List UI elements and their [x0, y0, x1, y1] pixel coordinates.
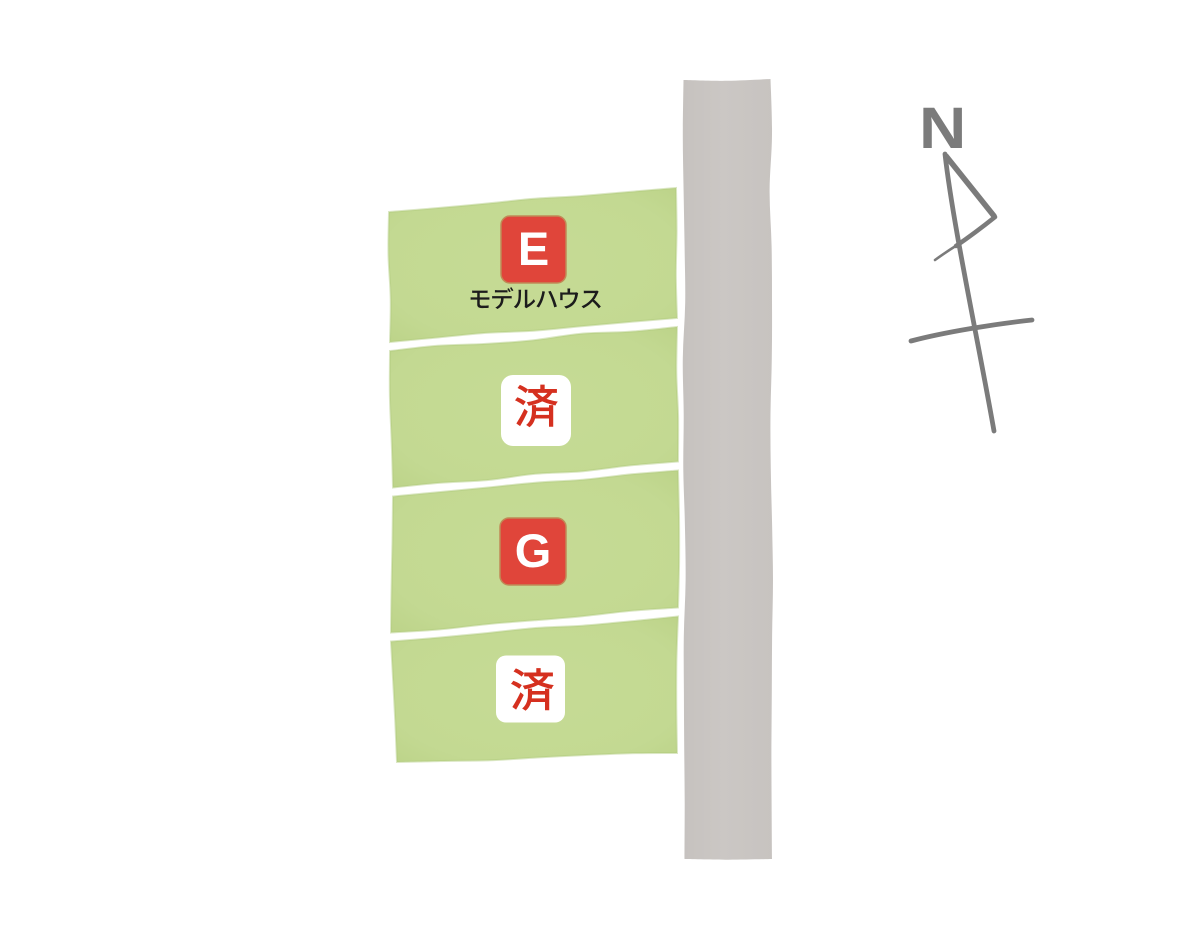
- svg-text:G: G: [515, 524, 552, 577]
- svg-text:N: N: [919, 96, 966, 161]
- svg-text:E: E: [518, 222, 549, 275]
